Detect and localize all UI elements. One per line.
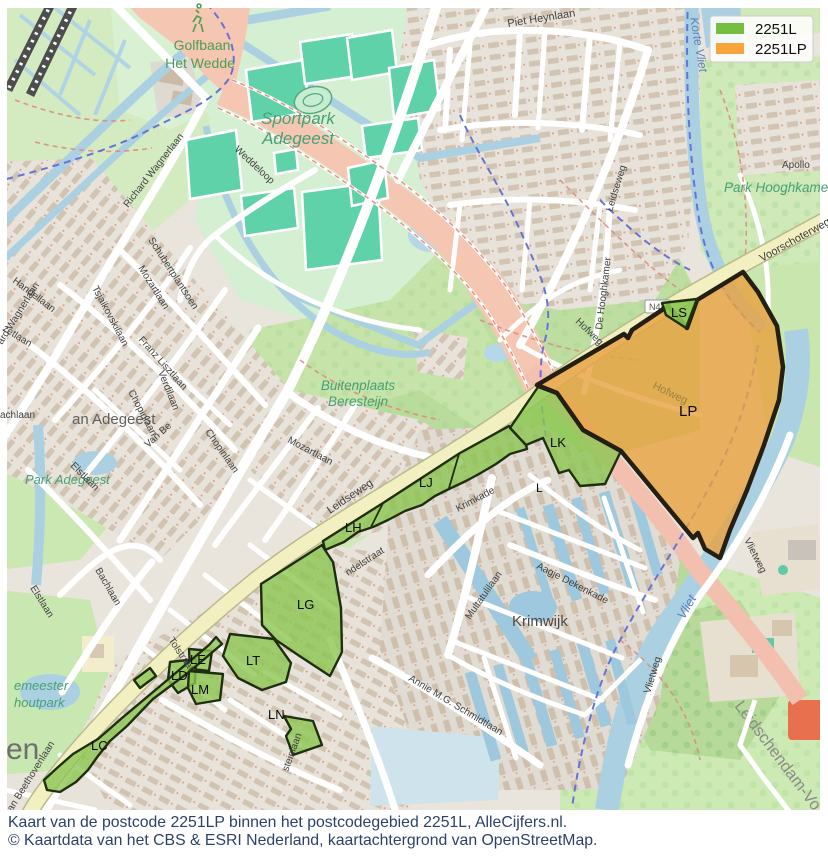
svg-text:2251L: 2251L <box>755 21 797 38</box>
svg-text:L: L <box>536 481 543 495</box>
svg-text:emeester: emeester <box>14 678 69 693</box>
svg-text:houtpark: houtpark <box>14 695 66 710</box>
svg-text:Krimwijk: Krimwijk <box>512 613 568 630</box>
svg-text:LP: LP <box>679 403 697 420</box>
svg-text:LH: LH <box>345 520 362 535</box>
svg-text:LT: LT <box>246 653 260 668</box>
svg-text:LM: LM <box>191 682 209 697</box>
svg-text:LS: LS <box>671 305 687 320</box>
svg-text:achlaan: achlaan <box>0 410 35 421</box>
svg-text:Buitenplaats: Buitenplaats <box>321 378 396 393</box>
svg-text:Het Wedde: Het Wedde <box>165 55 235 71</box>
svg-text:LC: LC <box>91 738 108 753</box>
svg-text:LJ: LJ <box>419 475 433 490</box>
svg-text:Sportpark: Sportpark <box>261 109 336 128</box>
svg-text:LG: LG <box>297 597 314 612</box>
svg-text:2251LP: 2251LP <box>755 41 807 58</box>
svg-text:LK: LK <box>550 435 566 450</box>
svg-text:Park Hooghkamer: Park Hooghkamer <box>724 180 828 195</box>
svg-text:Adegeest: Adegeest <box>261 129 335 148</box>
svg-text:Golfbaan: Golfbaan <box>174 37 231 53</box>
svg-text:Apollo: Apollo <box>782 160 810 171</box>
svg-text:LN: LN <box>268 707 285 722</box>
svg-text:Beresteijn: Beresteijn <box>328 394 388 409</box>
